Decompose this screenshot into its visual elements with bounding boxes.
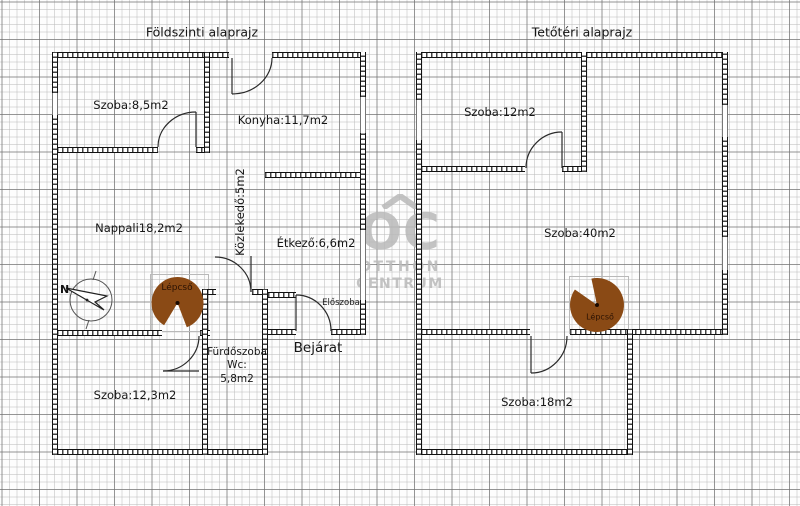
stairs-center-dot	[176, 301, 180, 305]
entrance-label: Bejárat	[294, 340, 343, 356]
room-label-szoba12: Szoba:12m2	[464, 105, 536, 119]
doors-and-symbols-layer: N	[0, 0, 800, 506]
stairs-label-ground: Lépcső	[161, 283, 192, 293]
door-arc	[232, 58, 272, 94]
door-arc	[158, 112, 196, 147]
room-label-furdoszoba-area: 5,8m2	[220, 373, 254, 385]
room-label-wc: Wc:	[227, 359, 247, 371]
door-arc	[526, 132, 562, 168]
door-arc	[163, 336, 199, 371]
room-label-kozlekedo: Közlekedő:5m2	[233, 168, 247, 256]
room-label-nappali: Nappali18,2m2	[95, 221, 183, 235]
room-label-eloszoba: Előszoba	[322, 298, 360, 308]
attic-floor-title: Tetőtéri alaprajz	[532, 25, 633, 40]
stairs-center-dot	[595, 303, 599, 307]
room-label-szoba85: Szoba:8,5m2	[93, 98, 168, 112]
room-label-etkezo: Étkező:6,6m2	[277, 236, 356, 250]
room-label-szoba18: Szoba:18m2	[501, 395, 573, 409]
room-label-furdoszoba: Fürdőszoba	[207, 346, 267, 358]
door-arc	[215, 257, 251, 292]
compass-north-label: N	[60, 283, 69, 296]
ground-floor-title: Földszinti alaprajz	[146, 25, 258, 40]
room-label-szoba123: Szoba:12,3m2	[94, 388, 177, 402]
floor-plan-canvas: OC OTTHON CENTRUM	[0, 0, 800, 506]
door-arc	[531, 336, 567, 373]
stairs-label-attic: Lépcső	[586, 313, 614, 322]
room-label-szoba40: Szoba:40m2	[544, 226, 616, 240]
room-label-konyha: Konyha:11,7m2	[238, 113, 328, 127]
compass-icon	[66, 271, 112, 329]
